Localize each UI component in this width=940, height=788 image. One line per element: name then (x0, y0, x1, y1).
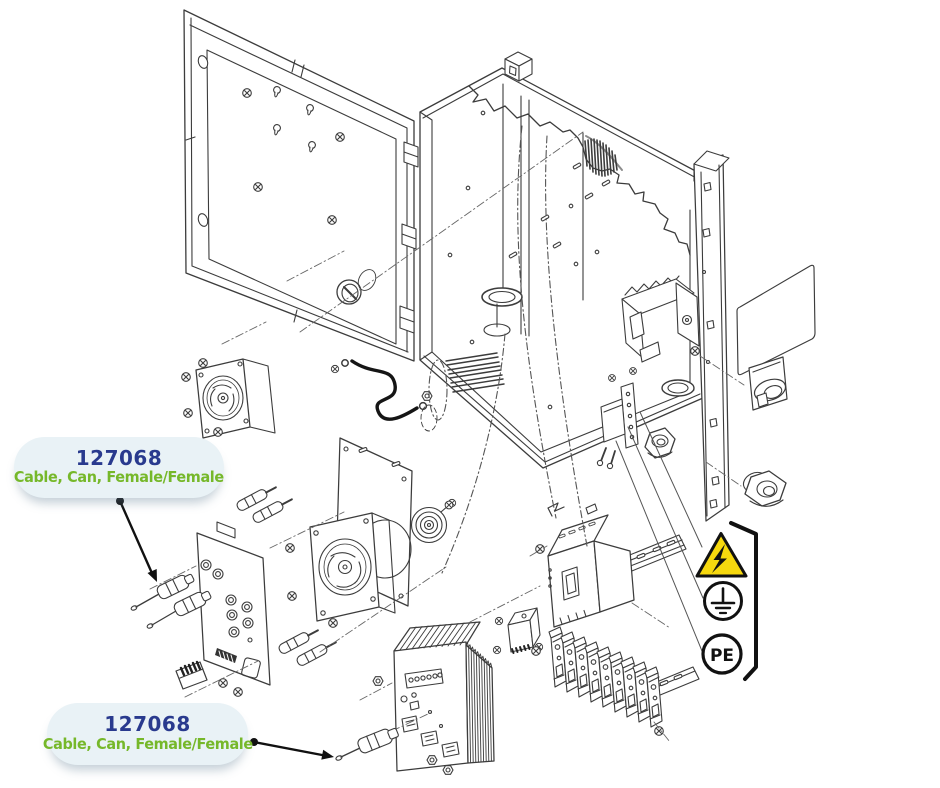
high-voltage-warning-icon (697, 534, 746, 577)
enclosure-box (420, 52, 721, 469)
label-plate (737, 265, 815, 374)
contactor (536, 503, 634, 627)
grommet-ring (662, 380, 694, 396)
connector-panel (197, 522, 270, 696)
ground-bonding-cable (331, 360, 437, 431)
callout-bubble: 127068 Cable, Can, Female/Female (14, 437, 224, 498)
callout-part-number: 127068 (104, 714, 191, 736)
pe-marking-icon: PE (703, 635, 741, 673)
controller-unit (394, 622, 494, 771)
cooling-fan-small (182, 359, 275, 438)
arrowhead-icon (148, 569, 158, 582)
can-cable-connector (335, 725, 400, 761)
terminal-block-row (532, 627, 699, 735)
earth-ground-icon (705, 583, 742, 620)
callout-description: Cable, Can, Female/Female (43, 736, 253, 754)
pe-label: PE (710, 646, 734, 666)
callout-bubble: 127068 Cable, Can, Female/Female (47, 703, 248, 765)
callout-leader (116, 497, 157, 582)
callout-leader (250, 738, 334, 760)
diagram-line-art: PE (0, 0, 940, 788)
callout-part-number: 127068 (76, 448, 163, 470)
enclosure-door (184, 10, 414, 361)
cable-gland (740, 469, 786, 506)
multi-pin-connector (176, 662, 207, 689)
arrowhead-icon (321, 750, 334, 760)
exploded-parts-diagram: PE 127068 Cable, Can, Female/Female 1270… (0, 0, 940, 788)
callout-description: Cable, Can, Female/Female (14, 469, 224, 487)
